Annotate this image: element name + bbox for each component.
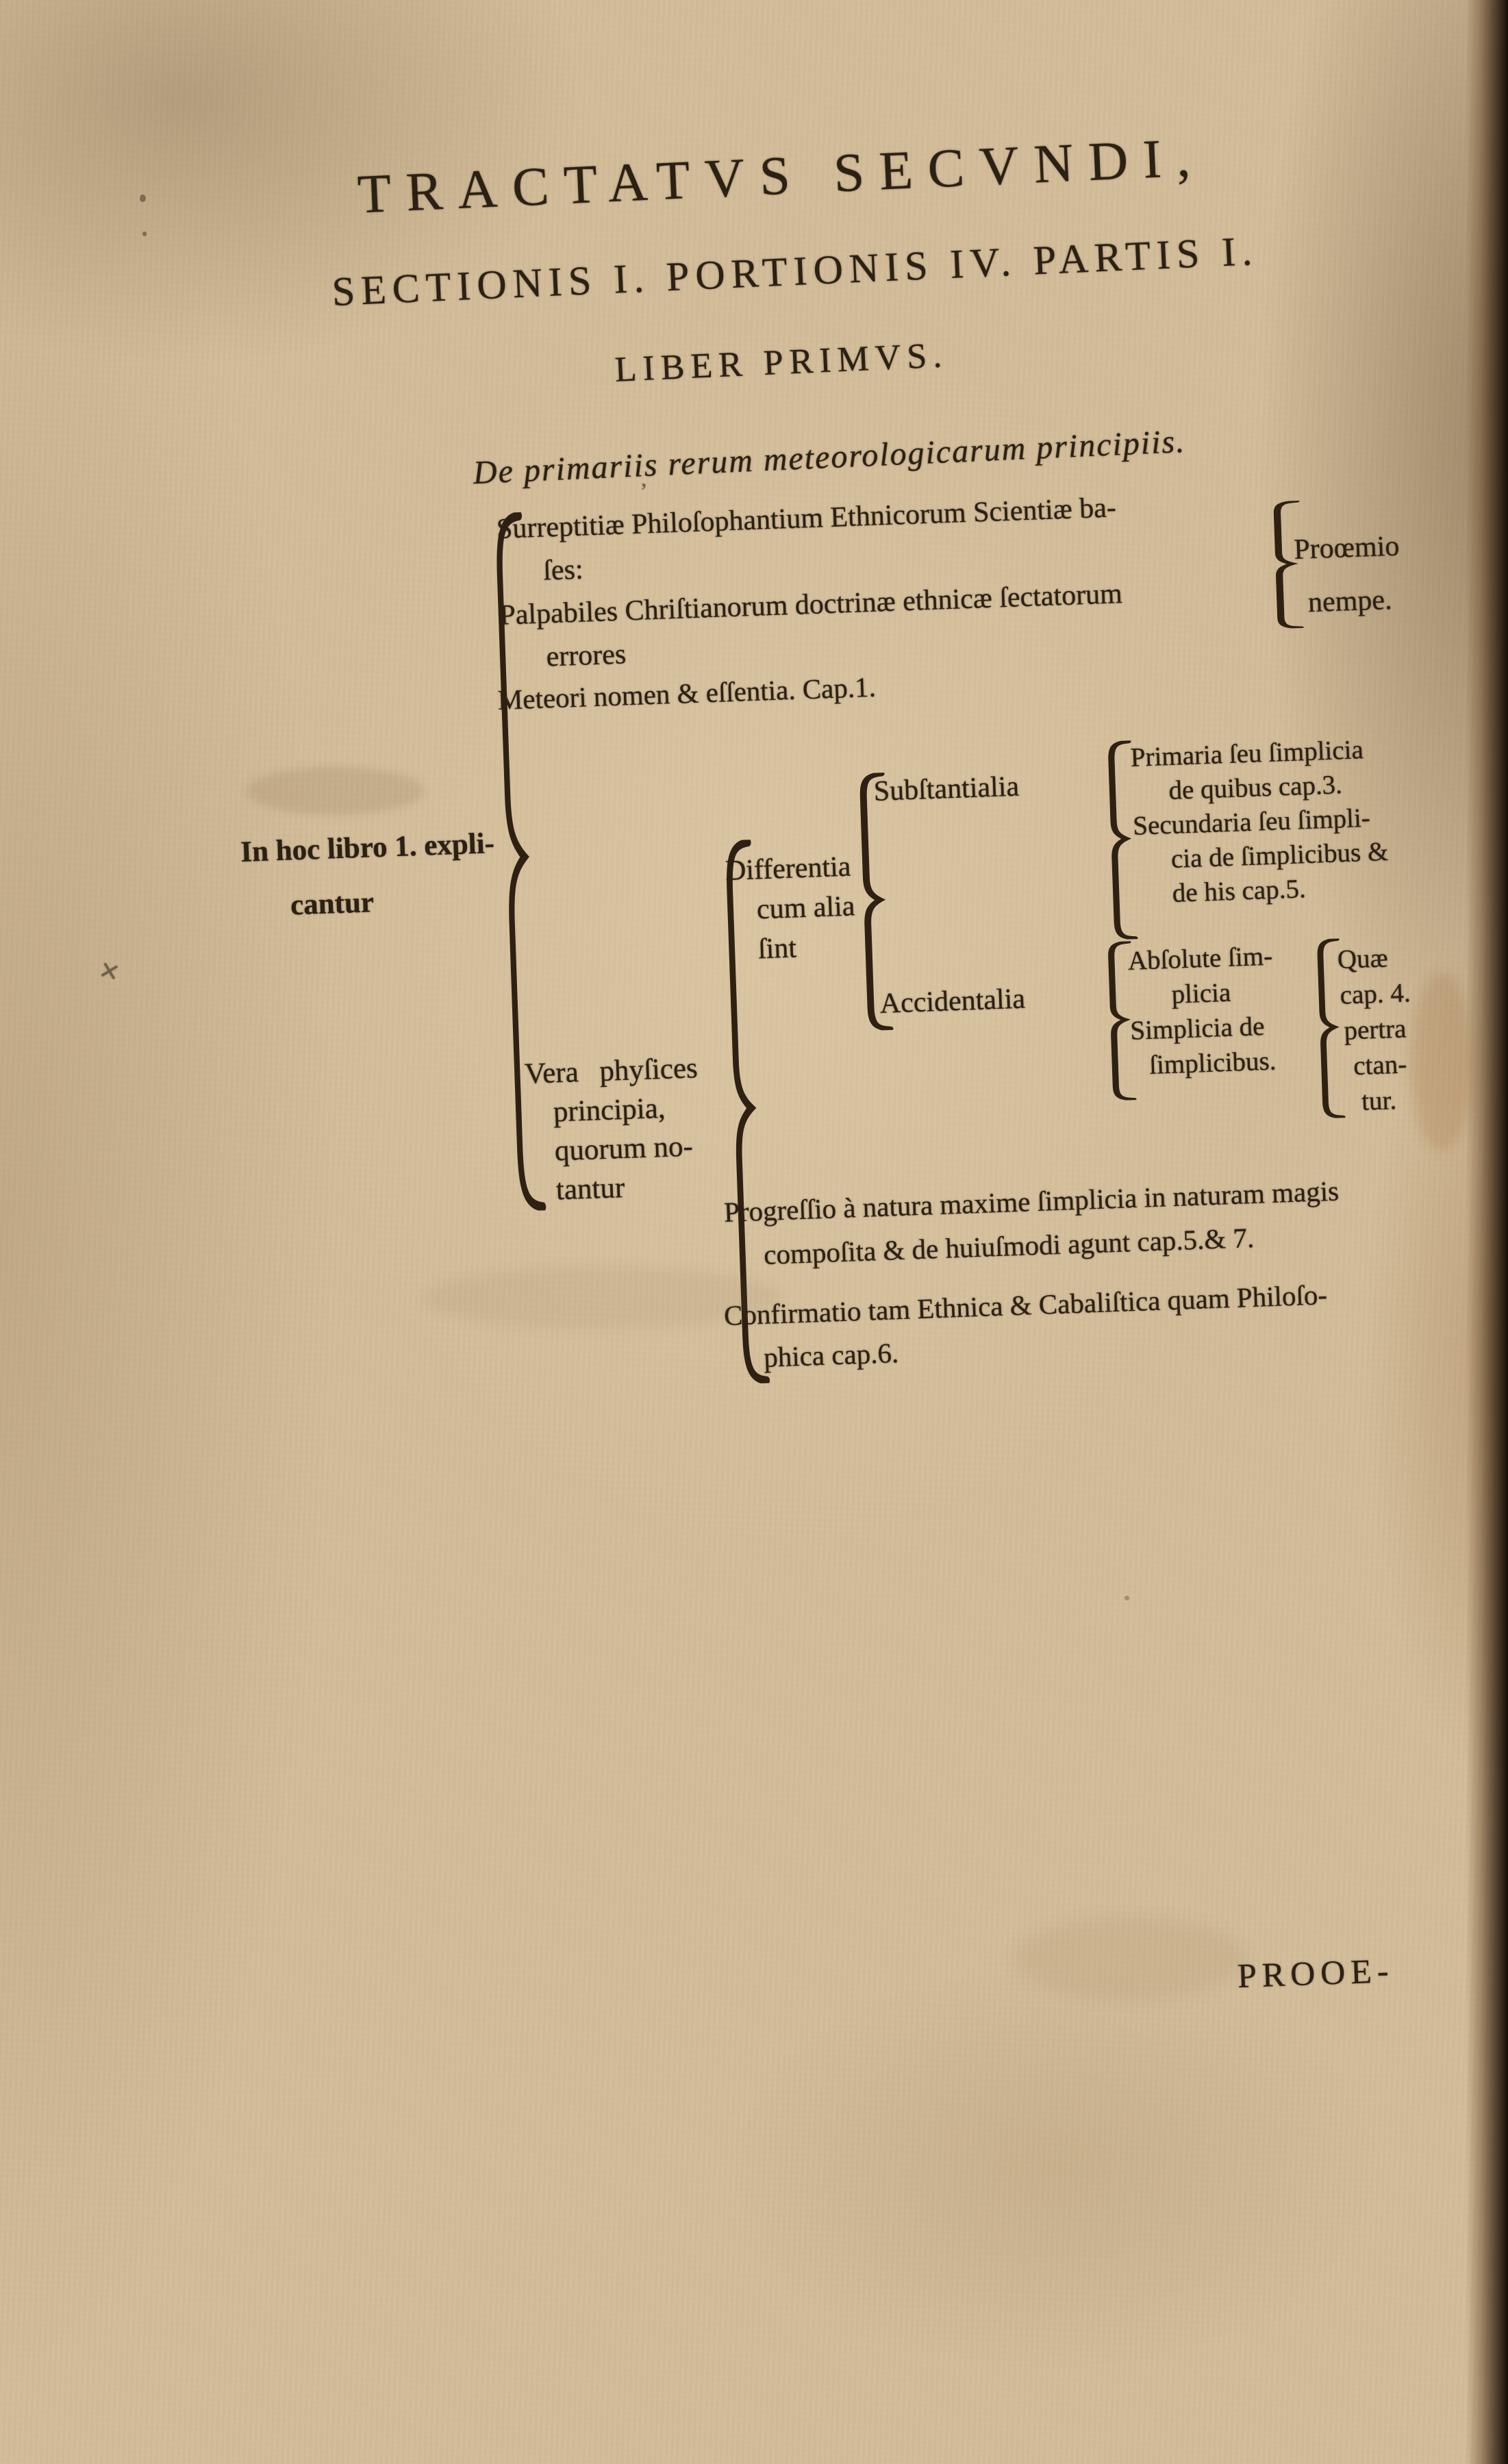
root-label-line: In hoc libro 1. expli- (240, 816, 495, 880)
stain (1411, 972, 1472, 1151)
stain (247, 767, 425, 815)
differentia-line: cum alia (756, 886, 855, 929)
prooemio-result-line: Proœmio (1293, 520, 1400, 577)
ink-speck (140, 194, 146, 202)
differentia-line: Differentia (725, 846, 854, 891)
accidentalia-kind-line: Abſolute ſim- (1127, 939, 1273, 979)
accidentalia-note-line: cap. 4. (1340, 975, 1411, 1014)
prooemio-result: Proœmio nempe. (1293, 520, 1402, 630)
stain (1014, 1918, 1246, 2000)
chapter-subtitle: De primariis rerum meteorologicarum prin… (75, 405, 1508, 510)
principia-line: quorum no- (554, 1127, 701, 1170)
node-progressio: Progreſſio à natura maxime ſimplicia in … (723, 1169, 1341, 1278)
accidentalia-note-line: ctan- (1353, 1046, 1413, 1084)
principia-line: principia, (553, 1088, 700, 1131)
ink-speck (142, 231, 147, 236)
differentia-line: ſint (757, 926, 857, 969)
accidentalia-note-line: pertra (1344, 1011, 1413, 1048)
title-line-2: SECTIONIS I. PORTIONIS IV. PARTIS I. (41, 214, 1508, 329)
branch-principia-label: Vera phyſices principia, quorum no- tant… (524, 1048, 703, 1211)
title-line-1: TRACTATVS SECVNDI, (27, 112, 1508, 241)
accidentalia-note-line: Quæ (1337, 940, 1410, 978)
pen-mark: ✕ (96, 955, 123, 988)
accidentalia-kind-line: ſimplicibus. (1148, 1044, 1277, 1083)
title-line-3: LIBER PRIMVS. (27, 309, 1508, 416)
accidentalia-note-line: tur. (1361, 1082, 1415, 1120)
node-accidentalia: Accidentalia (879, 983, 1026, 1020)
pen-mark: ’ (640, 479, 649, 505)
root-label-line: cantur (290, 871, 497, 933)
ink-speck (1124, 1596, 1129, 1600)
node-substantialia: Subſtantialia (873, 770, 1020, 808)
substantialia-kind-line: de his cap.5. (1172, 869, 1390, 911)
accidentalia-kind-line: plicia (1171, 974, 1274, 1012)
node-confirmatio: Confirmatio tam Ethnica & Cabaliſtica qu… (723, 1273, 1329, 1381)
accidentalia-kind-line: Simplicia de (1130, 1009, 1276, 1048)
node-differentia: Differentia cum alia ſint (725, 846, 857, 970)
principia-line: tantur (555, 1166, 703, 1209)
substantialia-kinds: Primaria ſeu ſimplicia de quibus cap.3. … (1130, 732, 1390, 912)
accidentalia-note: Quæ cap. 4. pertra ctan- tur. (1337, 940, 1415, 1120)
scanned-book-page: TRACTATVS SECVNDI, SECTIONIS I. PORTIONI… (0, 0, 1508, 2464)
principia-line: Vera phyſices (524, 1048, 699, 1094)
root-label: In hoc libro 1. expli- cantur (240, 816, 497, 935)
branch-errores: Surreptitiæ Philoſophantium Ethnicorum S… (496, 486, 1124, 681)
prooemio-result-line: nempe. (1307, 573, 1403, 630)
catchword: PROOE- (1237, 1950, 1394, 1996)
accidentalia-kinds: Abſolute ſim- plicia Simplicia de ſimpli… (1127, 939, 1277, 1083)
